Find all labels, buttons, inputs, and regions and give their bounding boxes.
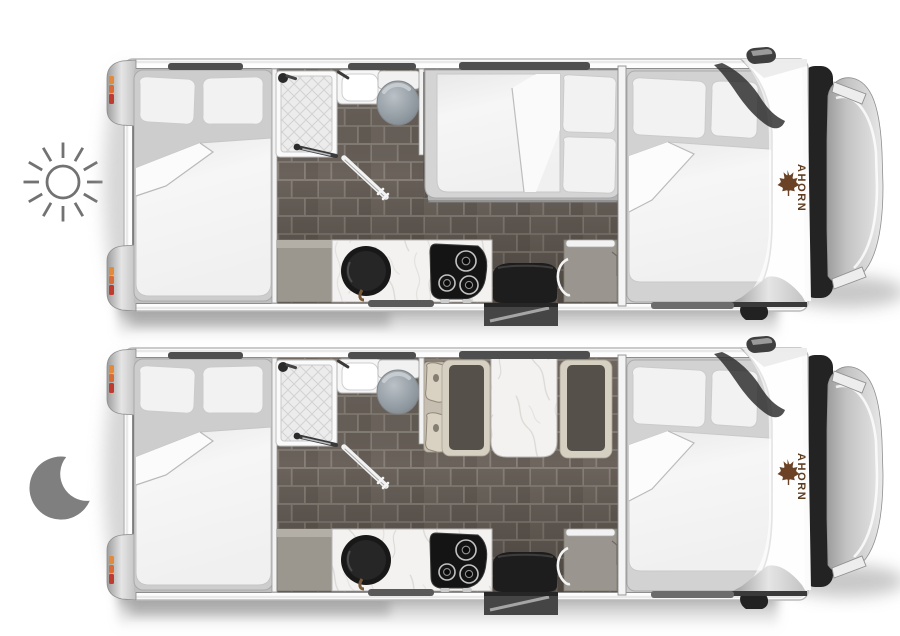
svg-text:AHORN: AHORN <box>795 453 807 501</box>
svg-text:AHORN: AHORN <box>795 164 807 212</box>
